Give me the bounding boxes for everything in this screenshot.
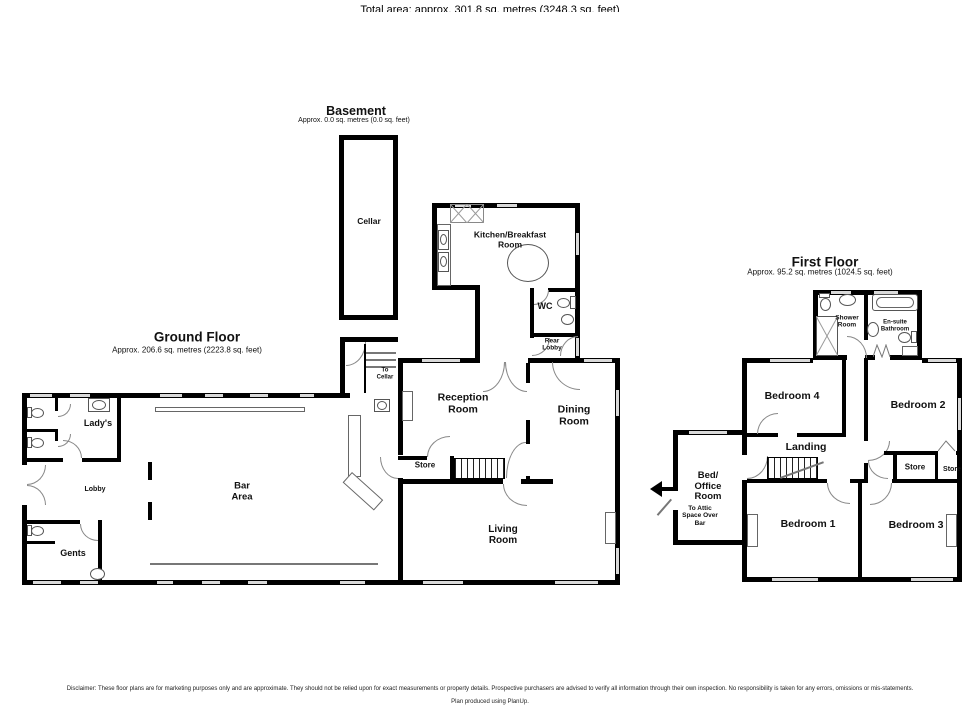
room-label-store-ground: Store <box>415 462 435 471</box>
wall <box>148 462 152 480</box>
sink-icon <box>440 256 447 267</box>
room-label-bed3: Bedroom 3 <box>889 520 944 532</box>
chimney-breast <box>946 514 957 547</box>
stair-tread <box>366 352 396 354</box>
window <box>772 577 818 582</box>
door-arc <box>27 485 46 505</box>
room-label-bar: Bar Area <box>231 481 252 502</box>
wall <box>956 451 962 455</box>
wall <box>673 430 678 490</box>
wall <box>475 285 480 360</box>
wall <box>892 479 962 483</box>
room-label-bed1: Bedroom 1 <box>781 519 836 531</box>
window <box>80 580 100 585</box>
sink-icon <box>90 568 105 580</box>
window <box>689 430 727 435</box>
attic-arrow-icon <box>650 481 662 497</box>
kitchen-units-icon <box>450 204 484 223</box>
wall <box>742 358 747 455</box>
wall <box>22 520 80 524</box>
wall <box>893 455 897 481</box>
room-label-to-cellar: To Cellar <box>377 367 394 380</box>
door-arc <box>505 362 527 392</box>
first-subtitle: Approx. 95.2 sq. metres (1024.5 sq. feet… <box>747 269 892 278</box>
room-label-living: Living Room <box>488 524 517 546</box>
door-zigzag-icon <box>938 440 956 452</box>
window <box>30 393 52 398</box>
wall <box>673 540 747 545</box>
door-arc <box>58 404 71 417</box>
total-area-text: Total area: approx. 301.8 sq. metres (32… <box>360 3 619 12</box>
room-label-rear-lobby: Rear Lobby <box>542 338 562 353</box>
room-label-bed2: Bedroom 2 <box>891 400 946 412</box>
wall <box>893 451 938 455</box>
toilet-icon <box>557 298 570 308</box>
wall <box>864 358 868 441</box>
room-label-bed4: Bedroom 4 <box>765 391 820 403</box>
door-leaf <box>657 499 672 516</box>
sink-icon <box>839 294 856 306</box>
stair-tread <box>366 359 396 361</box>
window <box>555 580 598 585</box>
toilet-icon <box>898 332 911 343</box>
window <box>300 393 314 398</box>
door-arc <box>346 342 366 366</box>
wall <box>858 483 862 577</box>
room-label-kitchen: Kitchen/Breakfast Room <box>474 230 546 249</box>
door-arc <box>870 483 892 505</box>
wall <box>27 429 58 432</box>
chimney-breast <box>402 391 413 421</box>
wall <box>935 455 938 481</box>
window <box>160 393 182 398</box>
wall <box>117 393 121 462</box>
wall <box>526 420 530 444</box>
window <box>911 577 953 582</box>
door-arc <box>506 442 526 478</box>
room-label-store1: Store <box>905 464 925 473</box>
bifold-door-icon <box>873 344 891 358</box>
wall <box>27 541 55 544</box>
door-arc <box>552 362 580 390</box>
toilet-icon <box>31 408 44 418</box>
window <box>248 580 267 585</box>
bathtub-icon <box>876 297 914 308</box>
sink-icon <box>440 234 447 245</box>
bench <box>150 563 378 565</box>
window <box>250 393 268 398</box>
room-label-bed-office: Bed/ Office Room <box>695 471 722 503</box>
door-arc <box>483 362 505 392</box>
cabinet <box>902 346 918 356</box>
wall <box>797 433 842 437</box>
attic-note: To Attic Space Over Bar <box>682 505 718 527</box>
room-label-lobby: Lobby <box>85 486 106 494</box>
door-arc <box>427 436 450 457</box>
window <box>70 393 90 398</box>
cellar-room <box>339 135 398 320</box>
sink-icon <box>867 322 879 337</box>
stairs <box>454 458 505 479</box>
floorplan-page: Basement Approx. 0.0 sq. metres (0.0 sq.… <box>0 0 980 712</box>
chimney-breast <box>605 512 616 544</box>
sink-icon <box>92 400 106 410</box>
window <box>423 580 463 585</box>
window <box>422 358 460 363</box>
room-label-landing: Landing <box>786 442 827 454</box>
window <box>928 358 956 363</box>
door-arc <box>868 461 888 479</box>
basement-title: Basement <box>326 104 386 118</box>
wall <box>842 358 846 437</box>
window <box>205 393 223 398</box>
total-area: Total area: approx. 301.8 sq. metres (32… <box>0 0 980 12</box>
sink-icon <box>561 314 574 325</box>
wall <box>148 502 152 520</box>
wall <box>398 456 427 460</box>
room-label-wc: WC <box>538 301 553 311</box>
window <box>615 390 620 416</box>
disclaimer-text: Disclaimer: These floor plans are for ma… <box>30 686 950 694</box>
room-label-shower: Shower Room <box>835 315 858 330</box>
door-arc <box>503 484 527 506</box>
window <box>575 233 580 255</box>
door-arc <box>560 336 578 356</box>
door-arc <box>380 457 398 479</box>
counter <box>343 472 384 511</box>
door-arc <box>27 465 46 485</box>
window <box>957 398 962 430</box>
window <box>584 358 612 363</box>
toilet-icon <box>570 296 576 309</box>
room-label-reception: Reception Room <box>438 392 489 416</box>
wall <box>22 458 63 462</box>
wall <box>398 478 403 585</box>
window <box>157 580 173 585</box>
toilet-icon <box>31 438 44 448</box>
room-label-cellar: Cellar <box>357 217 381 227</box>
ground-subtitle: Approx. 206.6 sq. metres (2223.8 sq. fee… <box>112 347 262 356</box>
counter <box>348 415 361 477</box>
wall <box>340 393 350 398</box>
wall <box>82 458 121 462</box>
wall <box>530 288 534 338</box>
basement-subtitle: Approx. 0.0 sq. metres (0.0 sq. feet) <box>298 117 410 125</box>
window <box>497 203 517 208</box>
wall <box>548 288 580 292</box>
window <box>615 548 620 574</box>
window <box>340 580 365 585</box>
room-label-ladys: Lady's <box>84 418 112 428</box>
room-label-gents: Gents <box>60 548 86 558</box>
door-arc <box>757 413 778 434</box>
door-arc <box>747 456 768 479</box>
window <box>770 358 810 363</box>
toilet-icon <box>31 526 44 536</box>
chimney-breast <box>747 514 758 547</box>
door-arc <box>80 524 98 541</box>
wall <box>22 505 27 585</box>
wall <box>747 479 827 483</box>
wall <box>340 337 345 398</box>
counter <box>155 407 305 412</box>
sink-icon <box>377 401 387 410</box>
toilet-icon <box>820 298 831 311</box>
room-label-store2: Store <box>943 466 961 474</box>
window <box>202 580 220 585</box>
attic-arrow-icon <box>662 487 678 491</box>
table <box>507 244 549 282</box>
door-arc <box>827 483 850 504</box>
room-label-dining: Dining Room <box>558 404 591 428</box>
ground-title: Ground Floor <box>154 329 240 344</box>
plan-credit: Plan produced using PlanUp. <box>0 699 980 705</box>
window <box>33 580 61 585</box>
room-label-ensuite: En-suite Bathroom <box>881 319 909 332</box>
toilet-icon <box>911 331 917 343</box>
